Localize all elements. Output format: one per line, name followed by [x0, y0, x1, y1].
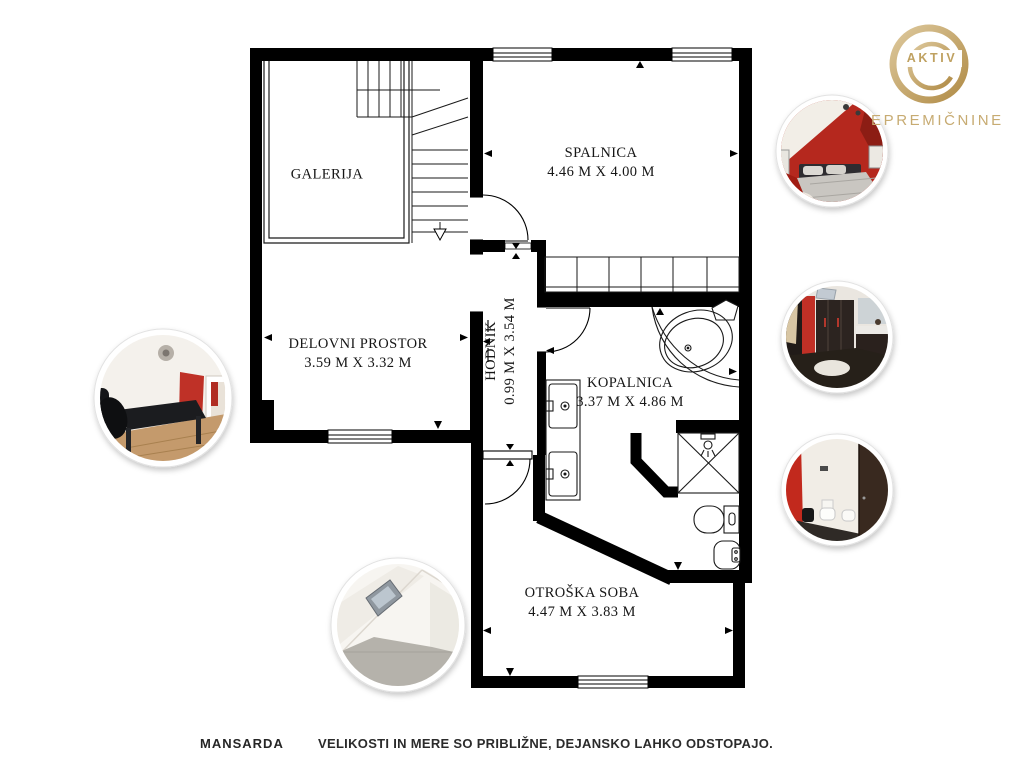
room-dims: 3.37 M X 4.86 M — [576, 393, 684, 412]
attic-room-photo — [331, 558, 465, 692]
room-label-galerija: GALERIJA — [291, 166, 363, 185]
room-label-kopalnica: KOPALNICA 3.37 M X 4.86 M — [576, 374, 684, 412]
double-sink — [546, 380, 580, 500]
window-delovni — [328, 430, 392, 443]
toilet — [694, 506, 739, 533]
bidet — [714, 541, 740, 569]
room-name: GALERIJA — [291, 166, 363, 185]
logo-company-text: EPREMIČNINE — [871, 112, 1021, 129]
office-photo — [92, 329, 232, 467]
stairs — [357, 61, 468, 243]
floor-name: MANSARDA — [200, 736, 284, 751]
room-label-hodnik: HODNIK 0.99 M X 3.54 M — [482, 297, 520, 405]
wc-photo — [781, 434, 893, 548]
door-spalnica — [470, 195, 528, 241]
room-name: SPALNICA — [547, 144, 655, 163]
room-dims: 0.99 M X 3.54 M — [501, 297, 520, 405]
room-label-otroska-soba: OTROŠKA SOBA 4.47 M X 3.83 M — [525, 584, 640, 622]
gallery-railing — [264, 61, 409, 243]
room-name: DELOVNI PROSTOR — [288, 335, 427, 354]
window-spalnica-2 — [672, 48, 732, 61]
room-dims: 3.59 M X 3.32 M — [288, 354, 427, 373]
room-dims: 4.46 M X 4.00 M — [547, 163, 655, 182]
room-label-delovni-prostor: DELOVNI PROSTOR 3.59 M X 3.32 M — [288, 335, 427, 373]
bathroom-photo — [781, 281, 893, 393]
room-name: KOPALNICA — [576, 374, 684, 393]
door-kopalnica — [537, 307, 590, 352]
room-name: OTROŠKA SOBA — [525, 584, 640, 603]
disclaimer-text: VELIKOSTI IN MERE SO PRIBLIŽNE, DEJANSKO… — [318, 736, 773, 751]
room-name: HODNIK — [482, 297, 501, 405]
logo-brand-text: AKTIV — [902, 51, 962, 65]
room-label-spalnica: SPALNICA 4.46 M X 4.00 M — [547, 144, 655, 182]
floorplan-page: { "logo": { "brand": "AKTIV", "company":… — [0, 0, 1024, 768]
window-otroska — [578, 676, 648, 688]
window-spalnica-1 — [493, 48, 552, 61]
shower — [678, 433, 739, 493]
room-dims: 4.47 M X 3.83 M — [525, 603, 640, 622]
door-otroska — [483, 451, 532, 504]
stair-direction-icon — [434, 222, 446, 240]
wardrobe — [545, 257, 739, 292]
